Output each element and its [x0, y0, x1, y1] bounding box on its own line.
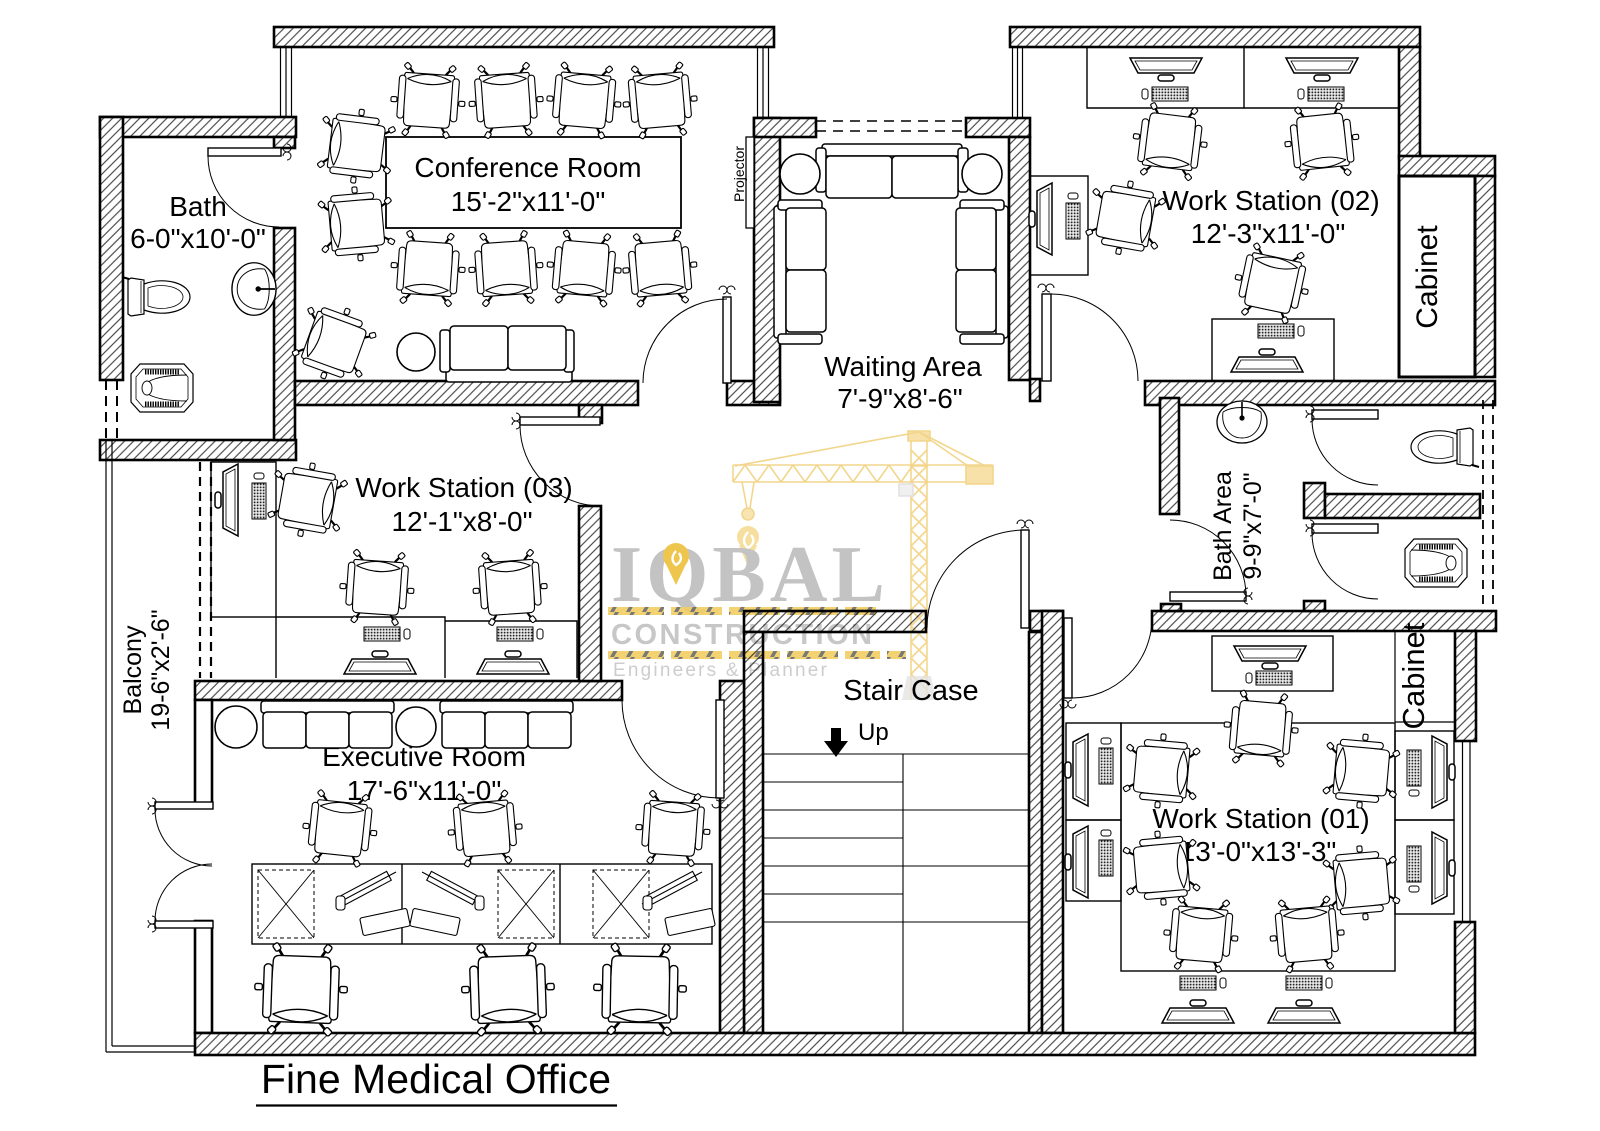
svg-text:Engineers & Planner: Engineers & Planner	[613, 660, 829, 681]
svg-text:Cabinet: Cabinet	[1396, 622, 1431, 729]
svg-text:12'-3"x11'-0": 12'-3"x11'-0"	[1191, 218, 1346, 249]
svg-text:Waiting Area: Waiting Area	[824, 351, 982, 382]
svg-text:17'-6"x11'-0": 17'-6"x11'-0"	[347, 775, 502, 806]
svg-text:Projector: Projector	[731, 146, 747, 202]
svg-text:Balcony: Balcony	[119, 625, 147, 714]
svg-text:15'-2"x11'-0": 15'-2"x11'-0"	[451, 186, 606, 217]
svg-text:12'-1"x8'-0": 12'-1"x8'-0"	[391, 506, 532, 537]
svg-text:Work Station (01): Work Station (01)	[1152, 803, 1369, 834]
svg-text:CONSTRUCTION: CONSTRUCTION	[611, 619, 875, 651]
svg-text:19-6"x2'-6": 19-6"x2'-6"	[147, 609, 175, 730]
svg-text:Conference Room: Conference Room	[414, 152, 641, 183]
svg-text:Bath: Bath	[169, 191, 227, 222]
svg-text:Bath Area: Bath Area	[1209, 471, 1237, 581]
svg-text:IQBAL: IQBAL	[611, 531, 889, 619]
svg-text:7'-9"x8'-6": 7'-9"x8'-6"	[837, 383, 963, 414]
svg-text:6-0"x10'-0": 6-0"x10'-0"	[130, 223, 266, 254]
svg-text:9-9"x7'-0": 9-9"x7'-0"	[1239, 472, 1267, 579]
svg-text:Cabinet: Cabinet	[1411, 225, 1444, 329]
svg-text:Work Station (03): Work Station (03)	[355, 472, 572, 503]
svg-text:Up: Up	[858, 719, 889, 746]
svg-text:13'-0"x13'-3": 13'-0"x13'-3"	[1180, 836, 1337, 867]
svg-text:Fine Medical Office: Fine Medical Office	[261, 1056, 611, 1102]
svg-text:Work Station (02): Work Station (02)	[1162, 185, 1379, 216]
